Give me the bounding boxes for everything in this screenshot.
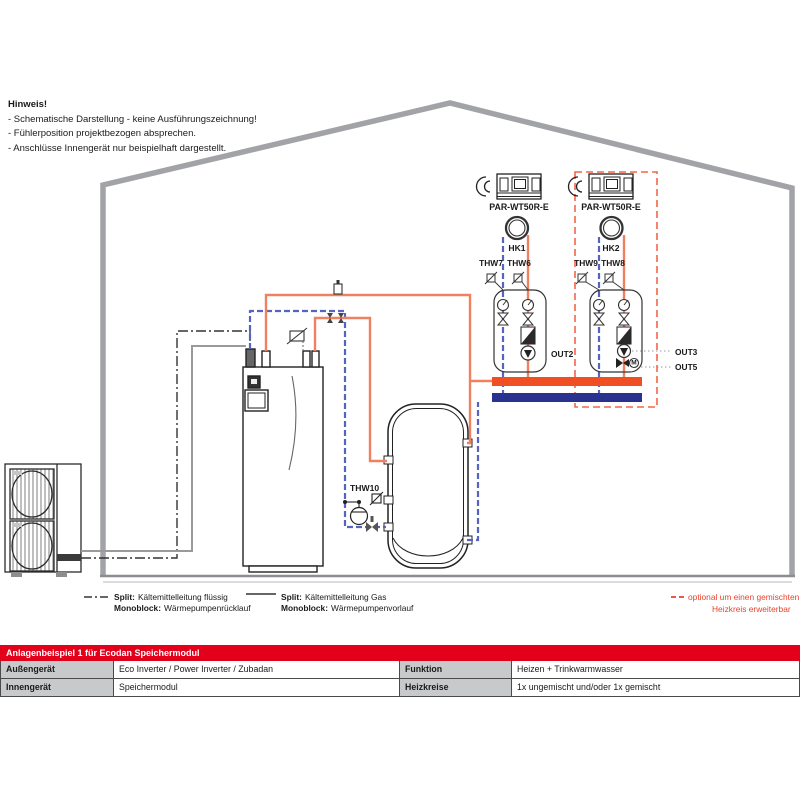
out5-label: OUT5 (675, 362, 697, 372)
controller-2-label: PAR-WT50R-E (581, 202, 640, 212)
legend-text: Kältemittelleitung Gas (305, 592, 386, 602)
legend-item-optional-line2: Heizkreis erweiterbar (712, 604, 791, 614)
buffer-tank (384, 404, 472, 568)
controller-1 (477, 174, 542, 199)
controller-2 (569, 174, 634, 199)
heating-circuit-2 (576, 217, 642, 372)
schematic-page: Hinweis! - Schematische Darstellung - ke… (0, 0, 800, 800)
outdoor-unit (5, 464, 81, 577)
hk2-label: HK2 (602, 243, 619, 253)
legend-text: Wärmepumpenrücklauf (164, 603, 251, 613)
row-value: Heizen + Trinkwarmwasser (512, 661, 800, 678)
legend-item-optional-line1: optional um einen gemischten (688, 592, 799, 602)
row-label: Funktion (400, 661, 512, 678)
safety-valve-icon (287, 328, 307, 351)
thw10-label: THW10 (350, 483, 379, 493)
spec-table: Anlagenbeispiel 1 für Ecodan Speichermod… (0, 645, 800, 697)
legend-prefix: Split: (281, 592, 302, 602)
notes-line: - Fühlerposition projektbezogen absprech… (8, 127, 257, 142)
row-value: 1x ungemischt und/oder 1x gemischt (512, 679, 800, 696)
row-value: Speichermodul (114, 679, 400, 696)
legend-prefix: Split: (114, 592, 135, 602)
spec-table-header: Anlagenbeispiel 1 für Ecodan Speichermod… (0, 645, 800, 661)
table-row: Außengerät Eco Inverter / Power Inverter… (0, 661, 800, 679)
legend-prefix: Monoblock: (114, 603, 161, 613)
table-row: Innengerät Speichermodul Heizkreise 1x u… (0, 679, 800, 697)
thw10-sensor-icon (370, 492, 383, 505)
hk1-label: HK1 (508, 243, 525, 253)
notes-block: Hinweis! - Schematische Darstellung - ke… (8, 98, 257, 156)
manifold-flow-bar (492, 377, 642, 386)
refrigerant-line-liquid (81, 331, 250, 558)
manifold-return-bar (492, 393, 642, 402)
out3-label: OUT3 (675, 347, 697, 357)
expansion-vessel-icon (343, 500, 368, 525)
indoor-unit (243, 349, 323, 572)
legend-prefix: Monoblock: (281, 603, 328, 613)
mixing-valve-icon (616, 358, 623, 368)
row-label: Außengerät (0, 661, 114, 678)
heating-circuit-1 (485, 217, 546, 372)
legend-item-2: Split:Kältemittelleitung Gas Monoblock:W… (281, 592, 413, 614)
notes-line: - Anschlüsse Innengerät nur beispielhaft… (8, 142, 257, 157)
controller-1-label: PAR-WT50R-E (489, 202, 548, 212)
notes-line: - Schematische Darstellung - keine Ausfü… (8, 113, 257, 128)
notes-title: Hinweis! (8, 98, 257, 113)
row-label: Heizkreise (400, 679, 512, 696)
thw6-label: THW6 (507, 258, 531, 268)
out2-label: OUT2 (551, 349, 573, 359)
air-vent-icon (334, 280, 342, 294)
mixer-motor-label: M (631, 360, 636, 367)
row-label: Innengerät (0, 679, 114, 696)
tank-valve-icon (366, 516, 378, 532)
legend-item-1: Split:Kältemittelleitung flüssig Monoblo… (114, 592, 251, 614)
thw7-label: THW7 (479, 258, 503, 268)
legend-text: Wärmepumpenvorlauf (331, 603, 413, 613)
thw8-label: THW8 (601, 258, 625, 268)
legend-text: Kältemittelleitung flüssig (138, 592, 228, 602)
thw9-label: THW9 (574, 258, 598, 268)
row-value: Eco Inverter / Power Inverter / Zubadan (114, 661, 400, 678)
